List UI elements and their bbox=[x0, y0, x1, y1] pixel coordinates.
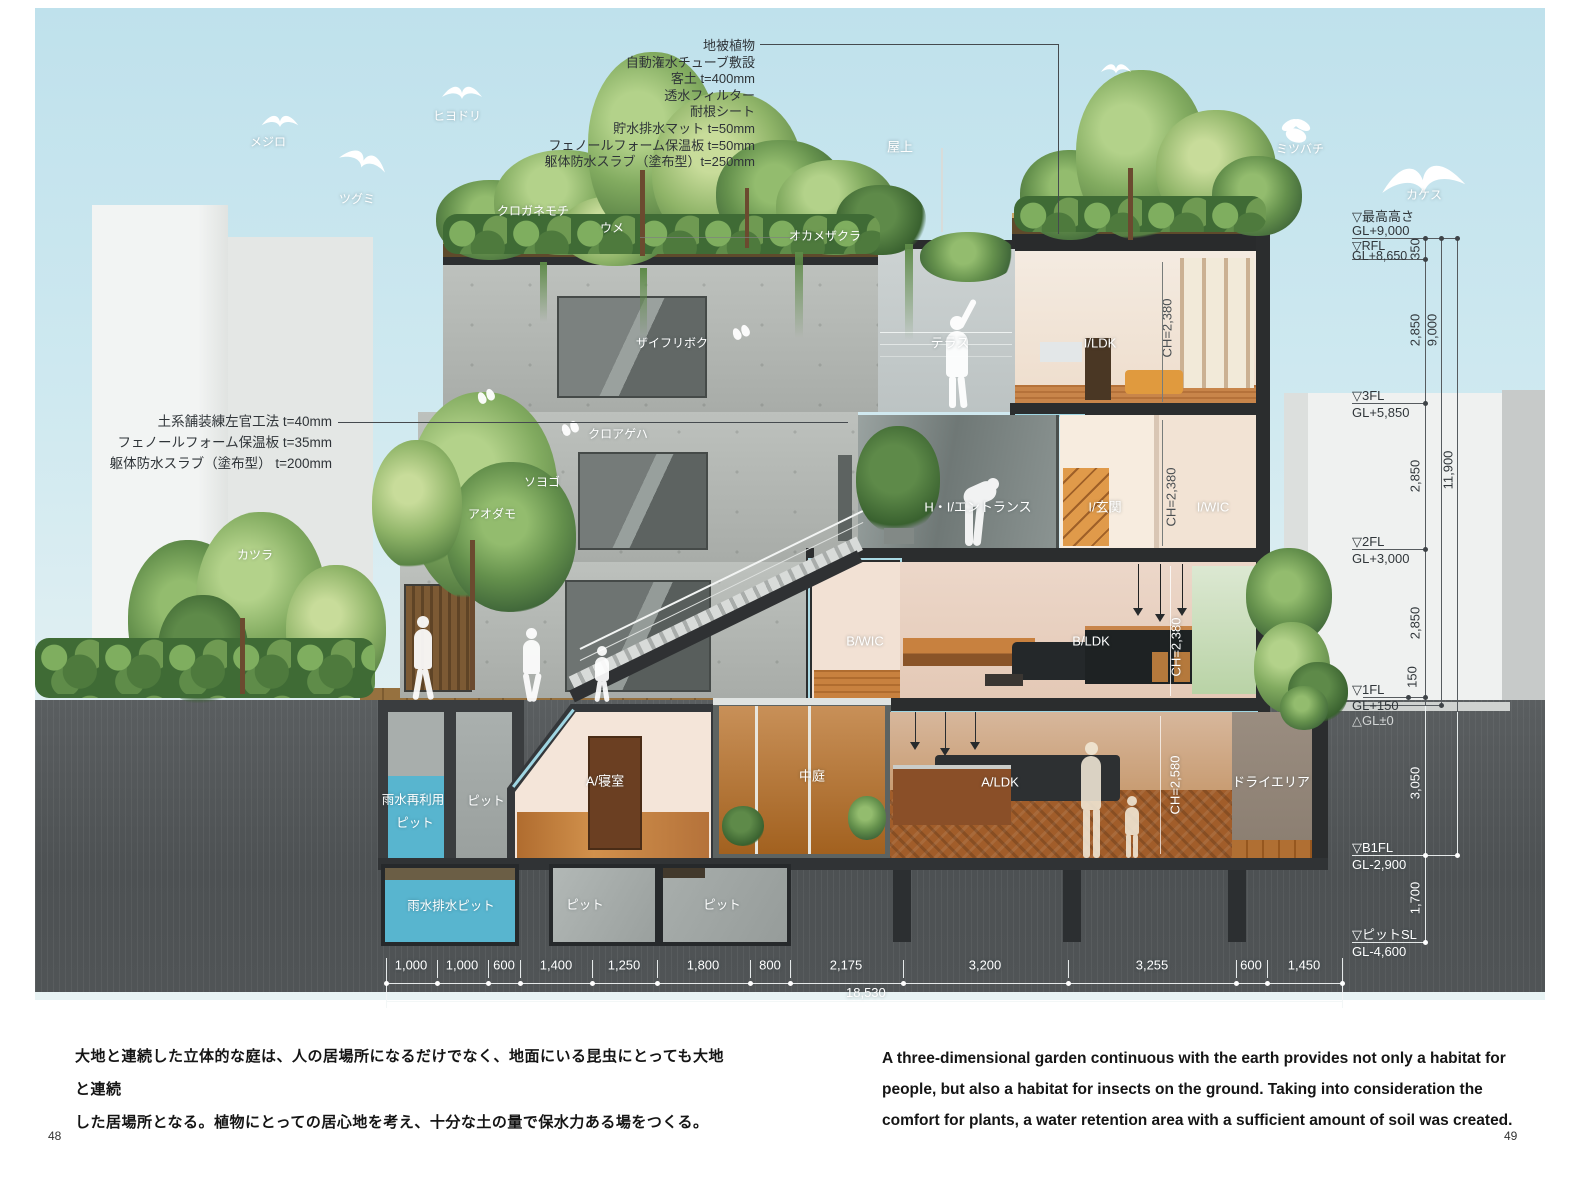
pit-upper bbox=[456, 712, 512, 860]
level-3fl-gl: GL+5,850 bbox=[1352, 406, 1409, 421]
silhouette-part bbox=[1126, 834, 1131, 858]
label-aodamo: アオダモ bbox=[468, 508, 516, 522]
label-dry-area: ドライエリア bbox=[1232, 776, 1310, 791]
vdim-2850-a: 2,850 bbox=[1409, 314, 1424, 347]
olive-pot bbox=[884, 528, 914, 544]
i-ldk-window bbox=[1180, 258, 1254, 388]
hdim-seg-8: 3,200 bbox=[969, 959, 1002, 974]
annotation-line: フェノールフォーム保温板 t=50mm bbox=[395, 138, 755, 155]
tree-trunk bbox=[1128, 168, 1133, 240]
child-a-ldk bbox=[1122, 796, 1142, 858]
level-gl0-name: △GL±0 bbox=[1352, 714, 1394, 729]
ch-line-3f bbox=[1162, 262, 1163, 402]
ch-line-a bbox=[1160, 716, 1161, 854]
hdim-dot bbox=[748, 981, 753, 986]
a-ldk-lamp-3 bbox=[970, 742, 980, 750]
level-dot bbox=[1406, 695, 1411, 700]
entrance-door-frame bbox=[1056, 415, 1059, 548]
b-ldk-chair-1 bbox=[1152, 652, 1168, 682]
caption-japanese: 大地と連続した立体的な庭は、人の居場所になるだけでなく、地面にいる昆虫にとっても… bbox=[75, 1040, 725, 1139]
hdim-seg-2: 600 bbox=[493, 959, 515, 974]
hdim-seg-7: 2,175 bbox=[830, 959, 863, 974]
caption-jp-line: 大地と連続した立体的な庭は、人の居場所になるだけでなく、地面にいる昆虫にとっても… bbox=[75, 1040, 725, 1106]
label-courtyard: 中庭 bbox=[799, 770, 825, 785]
silhouette-part bbox=[523, 640, 540, 674]
pendant-stem-3 bbox=[1182, 564, 1183, 608]
label-soyogo: ソヨゴ bbox=[524, 476, 560, 490]
silhouette-part bbox=[417, 616, 429, 628]
level-pitsl-gl: GL-4,600 bbox=[1352, 945, 1406, 960]
level-dot bbox=[1439, 703, 1444, 708]
caption-jp-line: した居場所となる。植物にとっての居心地を考え、十分な土の量で保水力ある場をつくる… bbox=[75, 1106, 725, 1139]
a-ldk-pendant-2 bbox=[945, 712, 946, 748]
child-walking bbox=[592, 646, 612, 702]
roof-layer-annotation: 地被植物 自動潅水チューブ敷設 客土 t=400mm 透水フィルター 耐根シート… bbox=[395, 38, 755, 171]
hdim-tick bbox=[657, 960, 658, 978]
level-pitsl-name: ▽ピットSL bbox=[1352, 928, 1417, 943]
label-terrace: テラス bbox=[931, 337, 970, 352]
label-kuroageha: クロアゲハ bbox=[588, 428, 648, 442]
label-mejiro: メジロ bbox=[250, 136, 286, 150]
hdim-dot bbox=[384, 981, 389, 986]
terrace-layer-annotation: 土系舗装練左官工法 t=40mm フェノールフォーム保温板 t=35mm 躯体防… bbox=[60, 411, 332, 474]
a-ldk-lamp-2 bbox=[940, 748, 950, 756]
level-1fl-gl: GL+150 bbox=[1352, 699, 1399, 714]
leader-line-terrace-layers bbox=[338, 422, 848, 423]
silhouette-part bbox=[949, 376, 956, 408]
hdim-tick bbox=[790, 960, 791, 978]
bird-icon bbox=[258, 106, 302, 130]
tree-trunk bbox=[240, 618, 245, 694]
hdim-tick bbox=[1267, 960, 1268, 978]
level-1fl-name: ▽1FL bbox=[1352, 683, 1384, 698]
level-dot bbox=[1423, 940, 1428, 945]
window-2f bbox=[578, 452, 708, 550]
label-rain-reuse-1: 雨水再利用 bbox=[382, 793, 445, 807]
pit-lower-2-notch bbox=[663, 868, 705, 878]
hdim-seg-3: 1,400 bbox=[540, 959, 573, 974]
bird-icon bbox=[1098, 56, 1134, 76]
tree-trunk bbox=[470, 540, 475, 690]
label-katsura: カツラ bbox=[237, 549, 273, 563]
hdim-seg-4: 1,250 bbox=[608, 959, 641, 974]
hdim-tick bbox=[592, 960, 593, 978]
annotation-line: 躯体防水スラブ（塗布型） t=200mm bbox=[60, 453, 332, 474]
vdim-line-11900-upper bbox=[1457, 238, 1458, 712]
silhouette-part bbox=[1125, 807, 1139, 835]
label-i-genkan: I/玄関 bbox=[1088, 501, 1121, 516]
level-saikou-gl: GL+9,000 bbox=[1352, 224, 1409, 239]
label-ch-2380-2f: CH=2,380 bbox=[1165, 468, 1180, 527]
label-rooftop: 屋上 bbox=[887, 141, 913, 156]
vdim-line-main-lower bbox=[1425, 705, 1426, 942]
hdim-tick bbox=[750, 960, 751, 978]
vdim-line-main-upper bbox=[1425, 238, 1426, 705]
vdim-11900: 11,900 bbox=[1442, 451, 1457, 490]
slab-2f bbox=[850, 548, 1258, 562]
hanging-vine bbox=[905, 244, 913, 340]
tree-canopy bbox=[372, 440, 462, 570]
hdim-seg-1: 1,000 bbox=[446, 959, 479, 974]
vdim-2850-c: 2,850 bbox=[1409, 607, 1424, 640]
ch-line-b bbox=[1170, 566, 1171, 696]
vdim-150: 150 bbox=[1406, 666, 1421, 688]
hdim-tick bbox=[488, 960, 489, 978]
hdim-total: 18,530 bbox=[846, 986, 886, 1001]
caption-en-line: comfort for plants, a water retention ar… bbox=[882, 1105, 1522, 1136]
level-b1fl-gl: GL-2,900 bbox=[1352, 858, 1406, 873]
ivy-cluster bbox=[920, 232, 1016, 282]
level-dot bbox=[1423, 401, 1428, 406]
level-dot bbox=[1423, 853, 1428, 858]
tree-trunk bbox=[640, 170, 645, 256]
level-dot bbox=[1423, 547, 1428, 552]
ch-line-2f bbox=[1162, 420, 1163, 546]
annotation-line: 躯体防水スラブ（塗布型）t=250mm bbox=[395, 154, 755, 171]
hdim-tick bbox=[903, 960, 904, 978]
caption-en-line: people, but also a habitat for insects o… bbox=[882, 1074, 1522, 1105]
hdim-dot bbox=[435, 981, 440, 986]
hdim-dot bbox=[655, 981, 660, 986]
label-ume: ウメ bbox=[600, 222, 624, 236]
label-entrance: H・I/エントランス bbox=[924, 501, 1031, 516]
hdim-dot bbox=[590, 981, 595, 986]
hdim-seg-6: 800 bbox=[759, 959, 781, 974]
tree-trunk bbox=[745, 188, 749, 248]
label-kuroganemochi: クロガネモチ bbox=[497, 205, 569, 219]
label-pit-lower-2: ピット bbox=[703, 898, 741, 912]
silhouette-part bbox=[1133, 834, 1138, 858]
level-dot bbox=[1423, 236, 1428, 241]
label-rain-drain: 雨水排水ピット bbox=[407, 899, 495, 913]
dry-area-plant bbox=[1280, 686, 1328, 730]
leader-line-roof-layers bbox=[760, 44, 1058, 45]
silhouette-part bbox=[957, 376, 967, 409]
street-hedge bbox=[35, 638, 375, 698]
a-bedroom-door bbox=[588, 736, 642, 850]
level-dot bbox=[1455, 853, 1460, 858]
label-a-bedroom: A/寝室 bbox=[586, 775, 624, 790]
hdim-dot bbox=[1340, 981, 1345, 986]
level-rfl-gl: GL+8,650 bbox=[1352, 249, 1407, 263]
label-rain-reuse-2: ピット bbox=[396, 816, 434, 830]
hdim-seg-0: 1,000 bbox=[395, 959, 428, 974]
hdim-dot bbox=[788, 981, 793, 986]
courtyard-plant bbox=[848, 796, 886, 840]
hdim-total-line bbox=[386, 1001, 1342, 1002]
label-b-wic: B/WIC bbox=[846, 635, 884, 650]
neighbor-building-right-2 bbox=[1502, 390, 1545, 715]
lightning-rod bbox=[941, 148, 943, 232]
silhouette-part bbox=[1085, 742, 1098, 755]
label-b-ldk: B/LDK bbox=[1072, 635, 1110, 650]
vdim-1700: 1,700 bbox=[1409, 882, 1424, 915]
annotation-line: フェノールフォーム保温板 t=35mm bbox=[60, 432, 332, 453]
leader-line-roof-layers-drop bbox=[1058, 44, 1059, 234]
book-spread: 地被植物 自動潅水チューブ敷設 客土 t=400mm 透水フィルター 耐根シート… bbox=[0, 0, 1579, 1200]
roof-groundcover-right bbox=[1014, 196, 1266, 232]
label-kakesu: カケス bbox=[1406, 189, 1442, 203]
level-2fl-gl: GL+3,000 bbox=[1352, 552, 1409, 567]
level-b1fl-name: ▽B1FL bbox=[1352, 841, 1393, 856]
level-3fl-name: ▽3FL bbox=[1352, 389, 1384, 404]
annotation-line: 土系舗装練左官工法 t=40mm bbox=[60, 411, 332, 432]
leader-line-okamezakura bbox=[640, 237, 800, 238]
hanging-vine bbox=[640, 268, 647, 338]
hdim-dot bbox=[901, 981, 906, 986]
silhouette-part bbox=[601, 680, 609, 703]
silhouette-part bbox=[597, 646, 607, 656]
hdim-tick bbox=[1068, 960, 1069, 978]
silhouette-part bbox=[595, 657, 609, 681]
silhouette-part bbox=[414, 629, 432, 669]
silhouette-part bbox=[1093, 808, 1100, 858]
hanging-vine bbox=[795, 252, 803, 338]
person-walking bbox=[410, 616, 436, 700]
pendant-stem-2 bbox=[1160, 564, 1161, 614]
hdim-seg-5: 1,800 bbox=[687, 959, 720, 974]
foundation-pier-3 bbox=[1228, 870, 1246, 942]
foundation-pier-1 bbox=[893, 870, 911, 942]
vdim-3050: 3,050 bbox=[1409, 767, 1424, 800]
hdim-chain-line bbox=[386, 983, 1342, 984]
level-dot bbox=[1423, 257, 1428, 262]
label-i-wic: I/WIC bbox=[1197, 501, 1230, 516]
i-ldk-cabinet bbox=[1040, 342, 1082, 362]
hdim-seg-9: 3,255 bbox=[1136, 959, 1169, 974]
foundation-pier-2 bbox=[1063, 870, 1081, 942]
annotation-line: 地被植物 bbox=[395, 38, 755, 55]
label-zaifuriboku: ザイフリボク bbox=[636, 337, 708, 351]
hdim-tick bbox=[437, 960, 438, 978]
hdim-dot bbox=[1234, 981, 1239, 986]
hdim-dot bbox=[518, 981, 523, 986]
annotation-line: 透水フィルター bbox=[395, 88, 755, 105]
label-ch-2380-b: CH=2,380 bbox=[1170, 618, 1185, 677]
olive-tree bbox=[856, 426, 940, 534]
silhouette-part bbox=[526, 628, 537, 639]
hdim-dot bbox=[486, 981, 491, 986]
pendant-lamp-2 bbox=[1155, 614, 1165, 622]
hdim-seg-10: 600 bbox=[1240, 959, 1262, 974]
caption-en-line: A three-dimensional garden continuous wi… bbox=[882, 1043, 1522, 1074]
silhouette-part bbox=[422, 668, 435, 701]
level-dot bbox=[1423, 695, 1428, 700]
hdim-dot bbox=[1066, 981, 1071, 986]
i-ldk-sofa bbox=[1125, 370, 1183, 394]
label-pit-lower-1: ピット bbox=[566, 898, 604, 912]
label-a-ldk: A/LDK bbox=[981, 776, 1019, 791]
hdim-tick bbox=[1236, 960, 1237, 978]
label-okamezakura: オカメザクラ bbox=[789, 230, 861, 244]
person-walking bbox=[520, 628, 544, 702]
annotation-line: 自動潅水チューブ敷設 bbox=[395, 55, 755, 72]
a-ldk-pendant-3 bbox=[975, 712, 976, 742]
label-pit-upper: ピット bbox=[467, 794, 505, 808]
hanging-vine bbox=[540, 262, 547, 322]
a-ldk-pendant-1 bbox=[915, 712, 916, 742]
vdim-350: 350 bbox=[1409, 238, 1424, 260]
silhouette-part bbox=[1081, 756, 1101, 810]
level-dot bbox=[1439, 236, 1444, 241]
footing-slab bbox=[378, 858, 1328, 870]
level-2fl-name: ▽2FL bbox=[1352, 535, 1384, 550]
hdim-dot bbox=[1265, 981, 1270, 986]
vdim-2850-b: 2,850 bbox=[1409, 460, 1424, 493]
courtyard-plant bbox=[722, 806, 764, 846]
pendant-stem-1 bbox=[1138, 564, 1139, 608]
pendant-lamp-3 bbox=[1177, 608, 1187, 616]
silhouette-part bbox=[1083, 808, 1090, 858]
silhouette-part bbox=[950, 316, 964, 330]
silhouette-part bbox=[530, 673, 542, 703]
page-number-right: 49 bbox=[1504, 1130, 1517, 1144]
a-ldk-lamp-1 bbox=[910, 742, 920, 750]
courtyard-top-beam bbox=[713, 698, 891, 705]
rain-reuse-pit bbox=[388, 712, 444, 860]
b-ldk-table bbox=[985, 674, 1023, 686]
person-terrace-reaching bbox=[938, 298, 978, 408]
dry-area-deck bbox=[1232, 840, 1312, 860]
label-mitsubachi: ミツバチ bbox=[1276, 143, 1324, 157]
vdim-line-11900-lower bbox=[1457, 712, 1458, 855]
label-i-ldk: I/LDK bbox=[1084, 337, 1117, 352]
page-number-left: 48 bbox=[48, 1130, 61, 1144]
label-hiyodori: ヒヨドリ bbox=[433, 110, 481, 124]
caption-english: A three-dimensional garden continuous wi… bbox=[882, 1043, 1522, 1136]
pendant-lamp-1 bbox=[1133, 608, 1143, 616]
label-tsugumi: ツグミ bbox=[339, 193, 375, 207]
annotation-line: 客土 t=400mm bbox=[395, 71, 755, 88]
vdim-9000: 9,000 bbox=[1426, 314, 1441, 347]
silhouette-part bbox=[1127, 796, 1137, 806]
level-dot bbox=[1455, 236, 1460, 241]
label-ch-2580: CH=2,580 bbox=[1169, 756, 1184, 815]
hdim-tick bbox=[520, 960, 521, 978]
person-a-ldk bbox=[1076, 742, 1106, 858]
hdim-seg-11: 1,450 bbox=[1288, 959, 1321, 974]
